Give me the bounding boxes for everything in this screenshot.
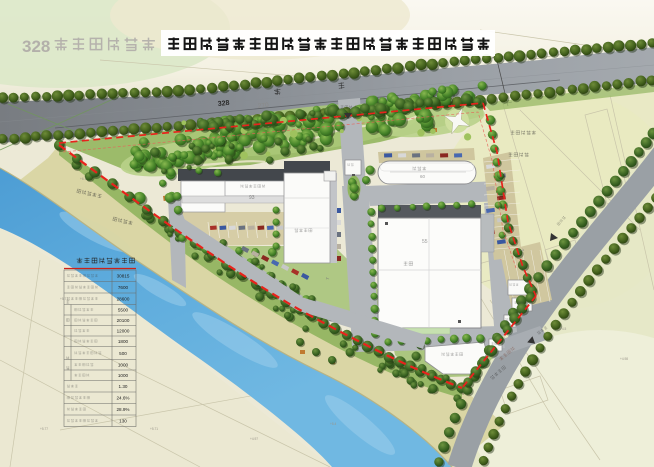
svg-text:130: 130 bbox=[119, 419, 127, 424]
svg-text:93: 93 bbox=[249, 195, 255, 201]
svg-text:20100: 20100 bbox=[117, 318, 130, 323]
svg-text:+5.4: +5.4 bbox=[330, 422, 337, 426]
svg-text:24.6%: 24.6% bbox=[116, 396, 129, 401]
svg-text:30815: 30815 bbox=[117, 274, 130, 279]
svg-text:1000: 1000 bbox=[118, 373, 129, 378]
svg-text:12000: 12000 bbox=[117, 329, 130, 334]
svg-text:+4.5: +4.5 bbox=[560, 327, 567, 331]
svg-text:60: 60 bbox=[420, 174, 426, 179]
svg-text:1800: 1800 bbox=[118, 339, 129, 344]
svg-text:28.9%: 28.9% bbox=[116, 407, 129, 412]
svg-text:270: 270 bbox=[257, 102, 269, 110]
svg-text:328: 328 bbox=[217, 100, 229, 108]
svg-text:7600: 7600 bbox=[118, 285, 129, 290]
svg-text:500: 500 bbox=[119, 351, 127, 356]
svg-text:5500: 5500 bbox=[118, 308, 129, 313]
svg-text:328: 328 bbox=[22, 37, 50, 56]
svg-text:55: 55 bbox=[422, 239, 428, 245]
svg-text:1000: 1000 bbox=[118, 363, 129, 368]
svg-text:+6.1: +6.1 bbox=[80, 177, 87, 181]
svg-text:+5.71: +5.71 bbox=[150, 427, 158, 431]
svg-text:+5.77: +5.77 bbox=[40, 427, 48, 431]
svg-text:1.30: 1.30 bbox=[119, 384, 128, 389]
svg-text:28600: 28600 bbox=[117, 297, 130, 302]
svg-text:+4.98: +4.98 bbox=[620, 357, 628, 361]
svg-text:+4.97: +4.97 bbox=[250, 437, 258, 441]
